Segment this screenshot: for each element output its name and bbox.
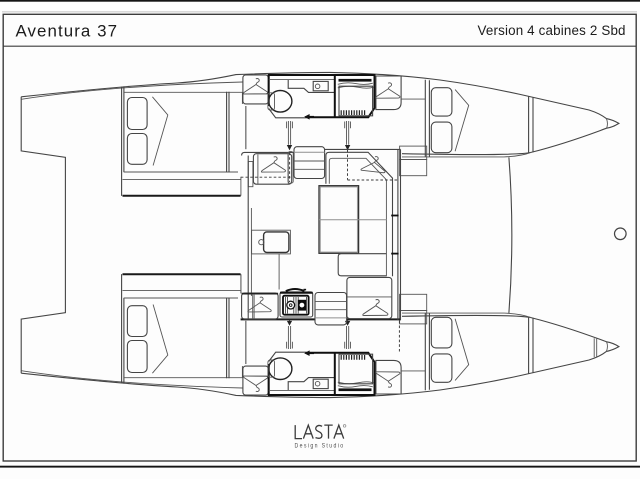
svg-text:Aventura 37: Aventura 37 <box>16 22 118 41</box>
svg-text:Design Studio: Design Studio <box>295 442 345 449</box>
svg-text:Version 4 cabines 2 Sbd: Version 4 cabines 2 Sbd <box>478 23 626 38</box>
